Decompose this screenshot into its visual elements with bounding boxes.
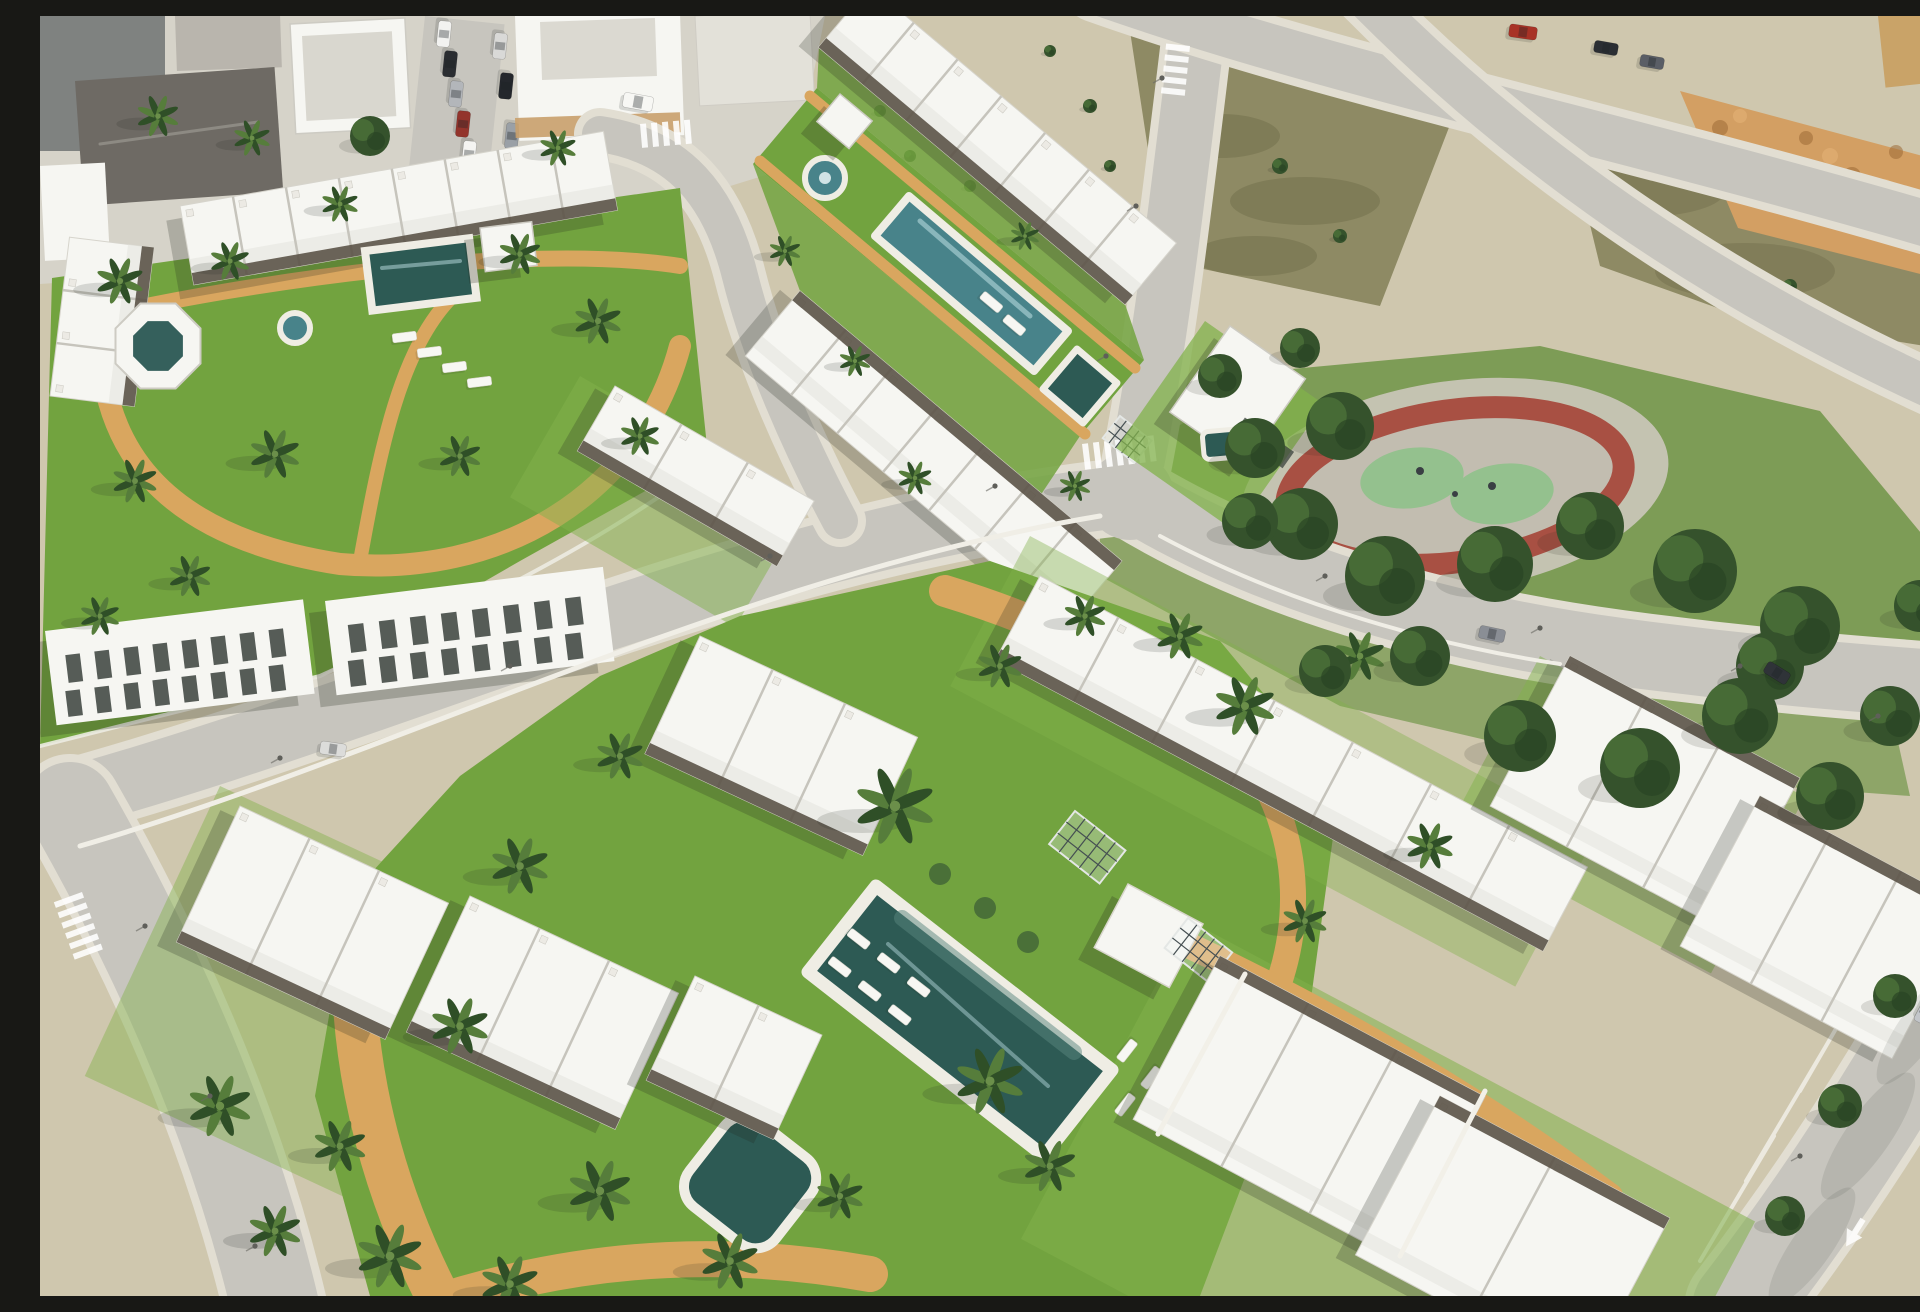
pool-planters (929, 863, 951, 885)
garden-pool (365, 238, 477, 310)
play-equipment (1488, 482, 1496, 490)
flat-roof (302, 31, 396, 121)
parked-car (433, 17, 452, 48)
parked-car (452, 107, 471, 138)
town-roof (175, 16, 282, 71)
play-equipment (1452, 491, 1458, 497)
mound-bump (1799, 131, 1813, 145)
round-pool (280, 313, 310, 343)
mound-top (1733, 109, 1747, 123)
scrub-patch (1230, 177, 1380, 225)
fountain-jet (819, 172, 831, 184)
play-equipment (1416, 467, 1424, 475)
parked-car (439, 47, 458, 78)
scene-canvas (40, 16, 1920, 1296)
town-building (695, 16, 815, 106)
parked-car (495, 69, 514, 100)
pool-planters (1017, 931, 1039, 953)
scrub-patch (1193, 236, 1317, 276)
pool-planters (974, 897, 996, 919)
parked-car (489, 29, 508, 60)
flat-roof (540, 18, 657, 80)
aerial-development-render (40, 16, 1920, 1296)
mound-bump (1889, 145, 1903, 159)
parked-car (445, 77, 464, 108)
fountain-water (133, 321, 183, 371)
mound-top (1822, 148, 1838, 164)
